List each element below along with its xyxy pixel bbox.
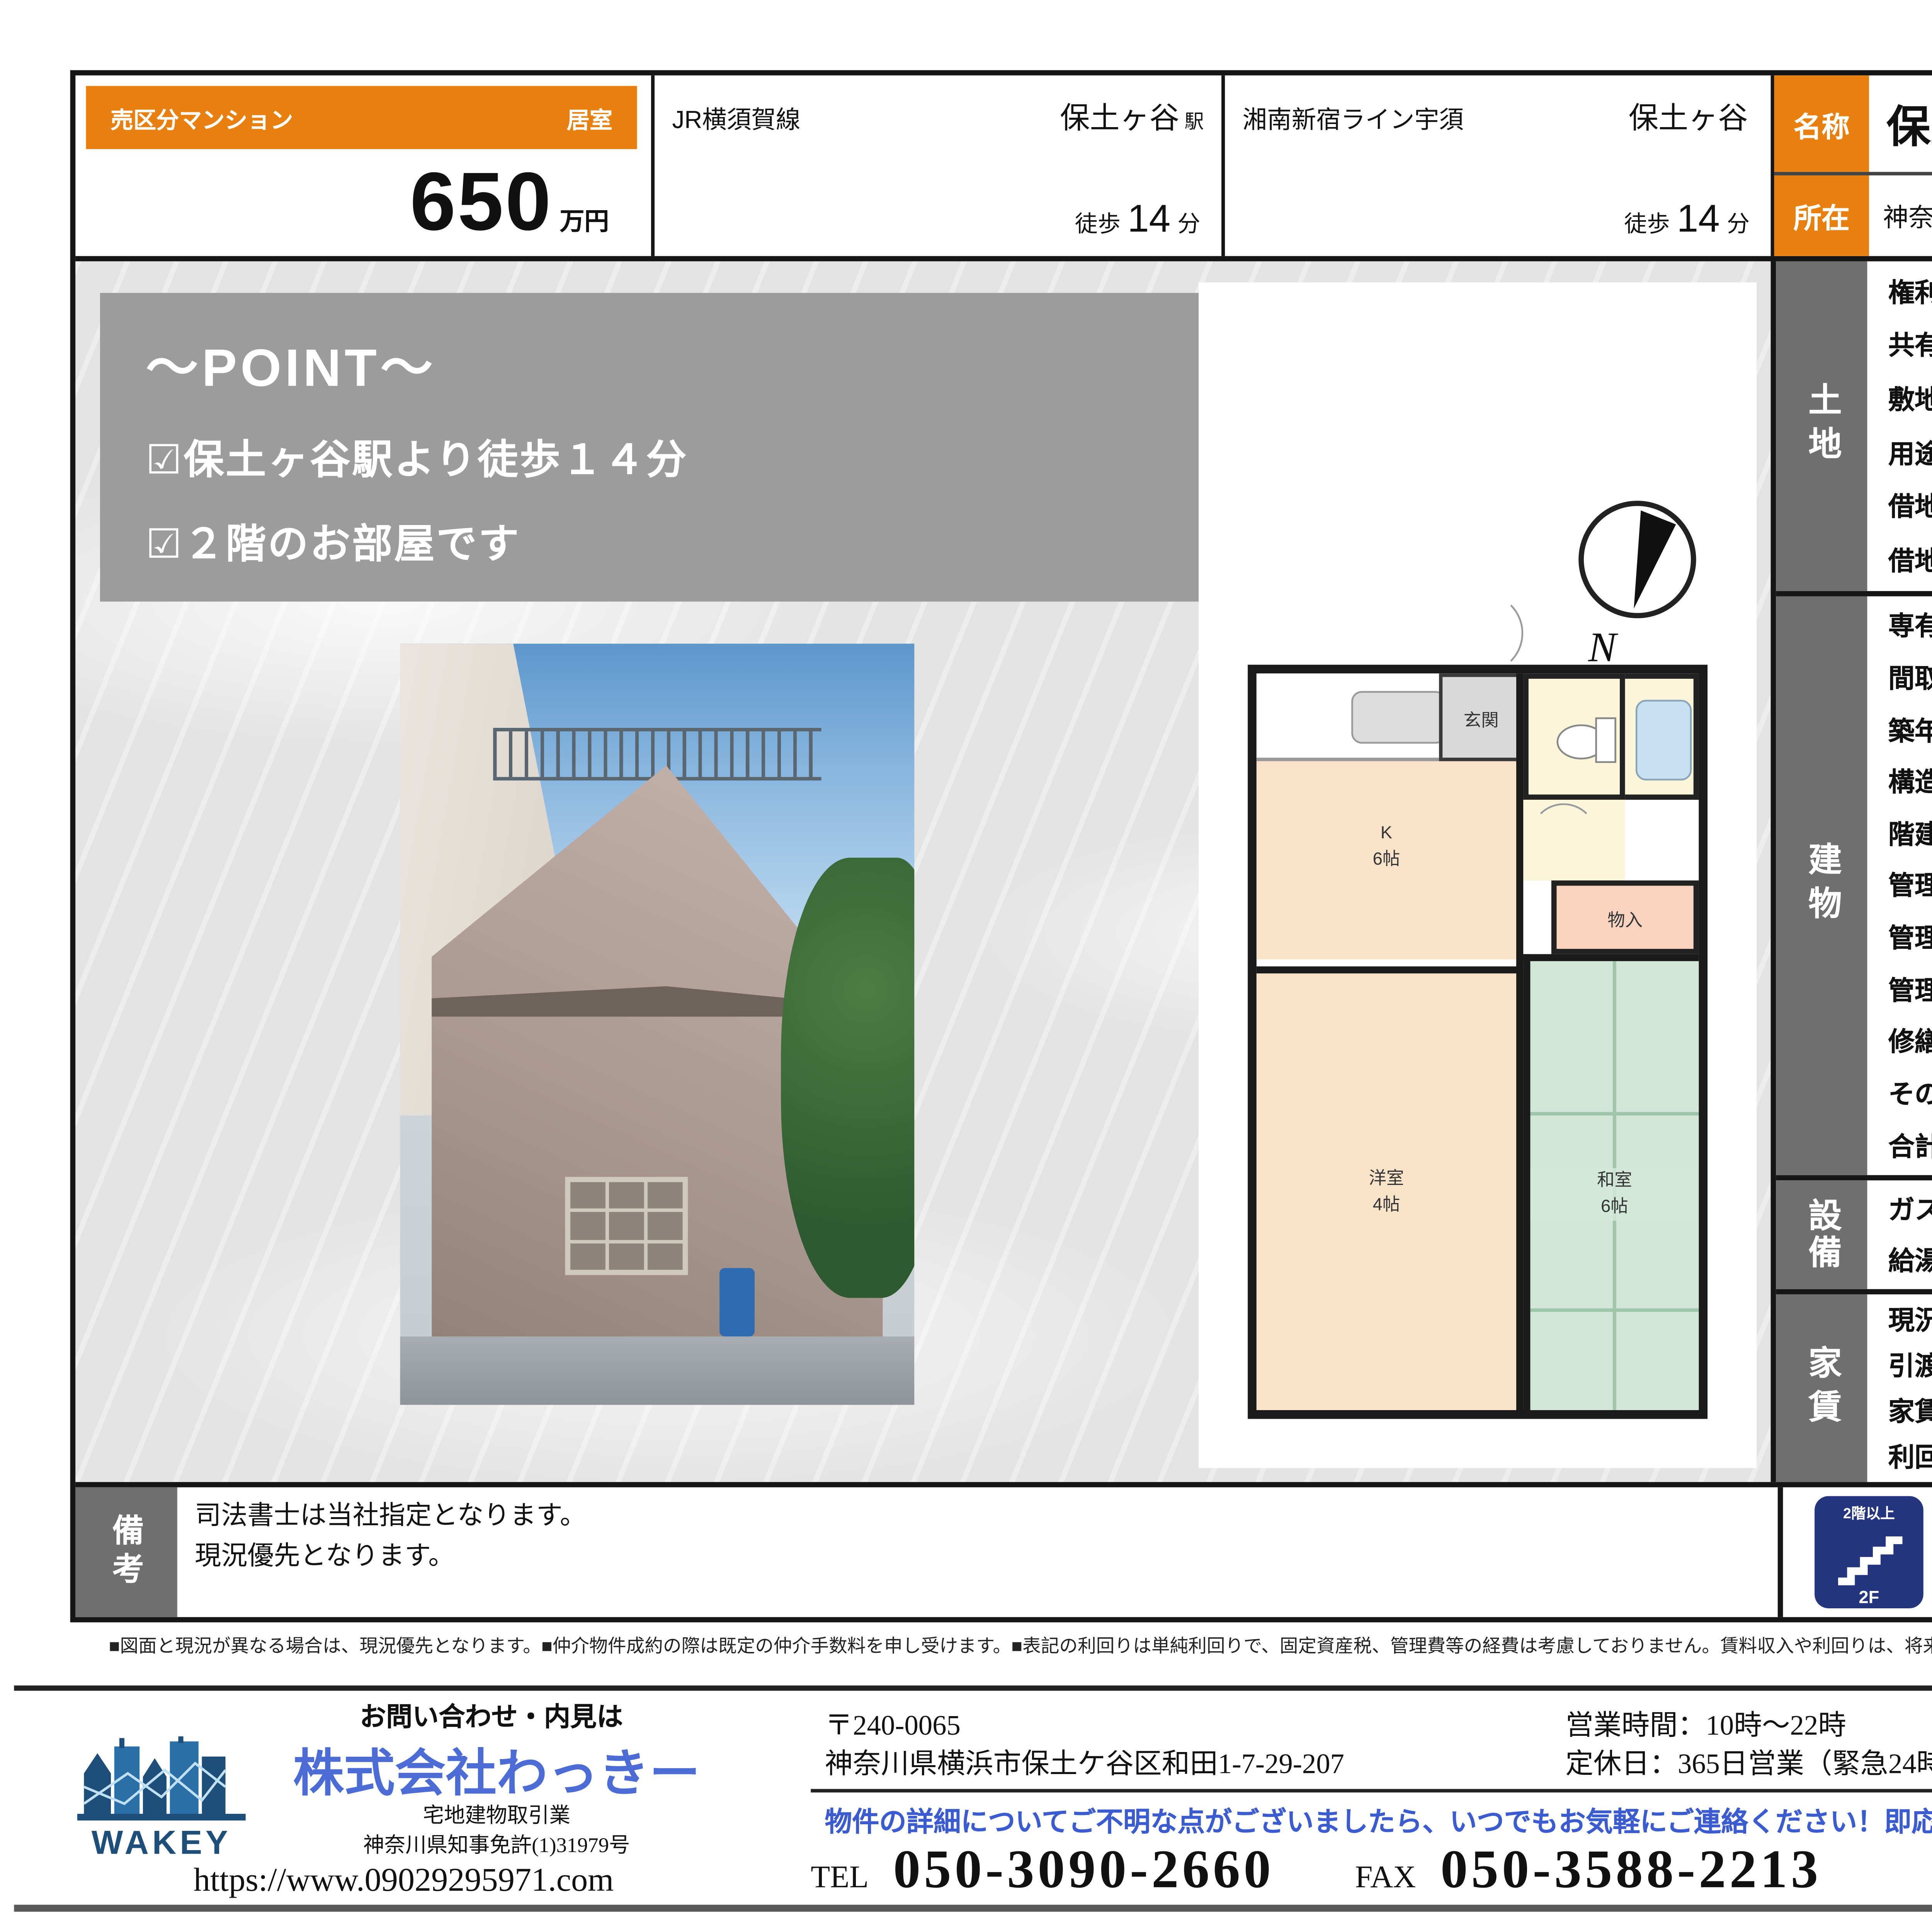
western-room-size: 4帖: [1373, 1196, 1400, 1215]
rail-station-suffix-1: 駅: [1185, 112, 1204, 133]
badge-second-floor: 2階以上 2F: [1815, 1496, 1923, 1608]
property-address: 神奈川県横浜市保土ケ谷区瀬戸ケ谷町153: [1869, 175, 1932, 256]
license-type: 宅地建物取引業: [260, 1800, 733, 1829]
stairs-icon: [1830, 1524, 1908, 1596]
phone-row: TEL 050-3090-2660 FAX 050-3588-2213: [811, 1838, 1932, 1901]
land-row: 用途地域第1種住居地域: [1888, 435, 1932, 471]
facilities-row-2: 給湯 ガス給湯器 敷地内駐車場 無: [1888, 1242, 1932, 1278]
building-row-exclusive: 専有部分 登記簿 32.17㎡ バルコニー 0.00 ㎡: [1888, 607, 1932, 644]
section-rent: 家賃 現況賃貸中 引渡し日相談 家賃 月額 54,000円 利回り9.96 %: [1776, 1294, 1932, 1482]
address-label: 所在: [1774, 175, 1869, 256]
section-building: 建物 専有部分 登記簿 32.17㎡ バルコニー 0.00 ㎡ 間取り 2DK …: [1776, 597, 1932, 1181]
land-row: 借地期間該当なし: [1888, 542, 1932, 579]
walk-label-1: 徒歩: [1075, 205, 1121, 238]
holidays: 定休日：365日営業（緊急24時間）: [1565, 1740, 1932, 1782]
building-row-mgmt-fee: 管理費 月額 0 円: [1888, 971, 1932, 1008]
photo-blue-drum: [719, 1268, 755, 1336]
details-table: 土地 権利所有権 共有持分 敷地面積㎡ 用途地域第1種住居地域 借地料該当なし …: [1771, 261, 1932, 1482]
tel-label: TEL: [811, 1859, 869, 1896]
floor-plan-box: N K 6帖 玄関: [1199, 282, 1757, 1468]
footer-rule: [811, 1789, 1932, 1793]
footer: お問い合わせ・内見は WAKEY 株式会社わっきー 宅地建物取引業: [0, 1691, 1932, 1905]
flyer-viewport: 売区分マンション 居室 650 万円 JR横須賀線 保土ヶ谷駅 徒歩 14 分: [0, 0, 1932, 1917]
building-row-floors: 階建 3階建て 2階部分: [1888, 815, 1932, 852]
property-flyer: 売区分マンション 居室 650 万円 JR横須賀線 保土ヶ谷駅 徒歩 14 分: [0, 0, 1932, 1917]
svg-text:N: N: [1588, 624, 1618, 668]
license-number: 神奈川県知事免許(1)31979号: [260, 1829, 733, 1859]
company-url-link[interactable]: https://www.09029295971.com: [53, 1863, 755, 1901]
closet-label: 物入: [1607, 904, 1643, 930]
footer-bottom-divider: [14, 1905, 1932, 1912]
header-row: 売区分マンション 居室 650 万円 JR横須賀線 保土ヶ谷駅 徒歩 14 分: [75, 75, 1932, 261]
building-row-structure: 構造鉄骨造: [1888, 763, 1932, 800]
room-entrance: 玄関: [1439, 673, 1523, 761]
remarks-label: 備考: [75, 1487, 177, 1617]
section-facilities: 設備 ガス 都市ガス エレベーター なし 給湯 ガス給湯器 敷地内駐車場 無: [1776, 1180, 1932, 1294]
section-rent-label: 家賃: [1776, 1294, 1867, 1482]
photo-mailboxes: [565, 1176, 688, 1275]
fax-label: FAX: [1355, 1859, 1416, 1896]
price-unit: 万円: [560, 204, 609, 239]
footer-top-divider: [14, 1686, 1932, 1691]
kitchen-size: 6帖: [1373, 851, 1400, 870]
wakey-logo: WAKEY: [74, 1736, 249, 1864]
disclaimer-text: ■図面と現況が異なる場合は、現況優先となります。■仲介物件成約の際は既定の仲介手…: [109, 1633, 1932, 1659]
land-row: 共有持分: [1888, 327, 1932, 364]
compass-icon: N: [1567, 493, 1701, 668]
company-name: 株式会社わっきー: [260, 1733, 733, 1807]
building-row-mgmt-company: 管理会社: [1888, 867, 1932, 904]
contact-message: 物件の詳細についてご不明な点がございましたら、いつでもお気軽にご連絡ください！即…: [825, 1801, 1932, 1840]
postal-code: 〒240-0065: [825, 1701, 961, 1744]
property-photo: [400, 644, 915, 1405]
photo-trees: [781, 857, 914, 1298]
western-room-label: 洋室: [1369, 1170, 1404, 1189]
wakey-logo-text: WAKEY: [74, 1826, 249, 1864]
building-row-layout: 間取り 2DK 方位 東南 総戸数 8戸: [1888, 659, 1932, 696]
walk-min-2: 14: [1677, 196, 1720, 242]
rail-station-2: 保土ヶ谷: [1629, 102, 1748, 135]
remarks-line-2: 現況優先となります。: [195, 1537, 1760, 1577]
walk-label-2: 徒歩: [1624, 205, 1670, 238]
property-name: 保土ケ谷ハイツ: [1869, 75, 1932, 172]
facilities-row-1: ガス 都市ガス エレベーター なし: [1888, 1191, 1932, 1228]
access-cell-2: 湘南新宿ライン宇須 保土ヶ谷 徒歩 14 分: [1225, 75, 1774, 256]
kitchen-sink-icon: [1351, 691, 1446, 744]
room-western: 洋室 4帖: [1257, 966, 1516, 1410]
office-address: 神奈川県横浜市保土ケ谷区和田1-7-29-207: [825, 1740, 1344, 1782]
property-sheet: 売区分マンション 居室 650 万円 JR横須賀線 保土ヶ谷駅 徒歩 14 分: [70, 70, 1932, 1623]
point-item-2: ☑２階のお部屋です: [146, 510, 1156, 570]
rail-line-2: 湘南新宿ライン宇須: [1243, 102, 1464, 137]
business-hours: 営業時間：10時～22時: [1565, 1701, 1846, 1744]
land-row: 敷地面積㎡: [1888, 381, 1932, 418]
rent-row-rent: 家賃 月額 54,000円: [1888, 1392, 1932, 1429]
name-address-cell: 名称 保土ケ谷ハイツ 所在 神奈川県横浜市保土ケ谷区瀬戸ケ谷町153: [1774, 75, 1932, 256]
section-land: 土地 権利所有権 共有持分 敷地面積㎡ 用途地域第1種住居地域 借地料該当なし …: [1776, 261, 1932, 596]
sale-category: 売区分マンション: [111, 101, 293, 134]
bathtub-icon: [1636, 700, 1692, 780]
rail-station-1: 保土ヶ谷: [1060, 102, 1179, 135]
room-type: 居室: [567, 101, 612, 134]
rent-row-handover: 引渡し日相談: [1888, 1347, 1932, 1384]
room-toilet: [1523, 673, 1625, 800]
japanese-room-label: 和室: [1597, 1172, 1632, 1191]
price-cell: 売区分マンション 居室 650 万円: [75, 75, 655, 256]
japanese-room-size: 6帖: [1601, 1198, 1628, 1217]
walk-min-1: 14: [1128, 196, 1170, 242]
room-closet: 物入: [1551, 880, 1699, 954]
section-facilities-label: 設備: [1776, 1180, 1867, 1289]
feature-badges: 2階以上 2F バス・トイレ別: [1778, 1487, 1932, 1617]
remarks-row: 備考 司法書士は当社指定となります。 現況優先となります。 2階以上 2F バス…: [75, 1482, 1932, 1617]
wakey-logo-icon: [77, 1798, 246, 1827]
building-row-repair-fund: 修繕積立金 月額 6,000 円: [1888, 1023, 1932, 1060]
access-cell-1: JR横須賀線 保土ヶ谷駅 徒歩 14 分: [655, 75, 1225, 256]
rail-line-1: JR横須賀線: [672, 102, 800, 137]
kitchen-label: K: [1381, 824, 1392, 844]
point-box: ～POINT～ ☑保土ヶ谷駅より徒歩１４分 ☑２階のお部屋です: [100, 293, 1202, 602]
section-building-label: 建物: [1776, 597, 1867, 1175]
land-row: 権利所有権: [1888, 273, 1932, 310]
walk-unit-2: 分: [1727, 205, 1750, 238]
land-row: 借地料該当なし: [1888, 488, 1932, 525]
remarks-line-1: 司法書士は当社指定となります。: [195, 1498, 1760, 1537]
rent-row-yield: 利回り9.96 %: [1888, 1438, 1932, 1474]
tel-number: 050-3090-2660: [893, 1838, 1274, 1901]
entrance-door-arc: [1442, 593, 1523, 673]
point-item-1: ☑保土ヶ谷駅より徒歩１４分: [146, 426, 1156, 486]
photo-ground: [400, 1336, 915, 1405]
room-japanese: 和室 6帖: [1523, 954, 1699, 1410]
rent-row-status: 現況賃貸中: [1888, 1302, 1932, 1339]
price-value: 650: [410, 153, 553, 249]
price: 650 万円: [410, 153, 609, 249]
building-row-total-fee: 合計 月額 6,000 円: [1888, 1127, 1932, 1164]
walk-unit-1: 分: [1177, 205, 1200, 238]
building-row-other-fee: その他費用 月額 0 円: [1888, 1075, 1932, 1112]
room-hall: [1523, 800, 1625, 880]
photo-roof-railing: [493, 727, 822, 780]
category-band: 売区分マンション 居室: [86, 86, 637, 149]
inquiry-heading: お問い合わせ・内見は: [263, 1698, 719, 1735]
left-panel: ～POINT～ ☑保土ヶ谷駅より徒歩１４分 ☑２階のお部屋です: [75, 261, 1770, 1482]
floor-plan: K 6帖 玄関: [1248, 665, 1708, 1419]
name-label: 名称: [1774, 75, 1869, 172]
building-row-built: 築年 1977 年 02月（昭和52年02月）: [1888, 711, 1932, 748]
fax-number: 050-3588-2213: [1440, 1838, 1821, 1901]
point-title: ～POINT～: [146, 325, 1156, 402]
section-land-label: 土地: [1776, 261, 1867, 591]
room-bath: [1625, 673, 1699, 800]
building-row-mgmt-type: 管理形態自主管理: [1888, 919, 1932, 956]
entrance-label: 玄関: [1464, 704, 1499, 731]
